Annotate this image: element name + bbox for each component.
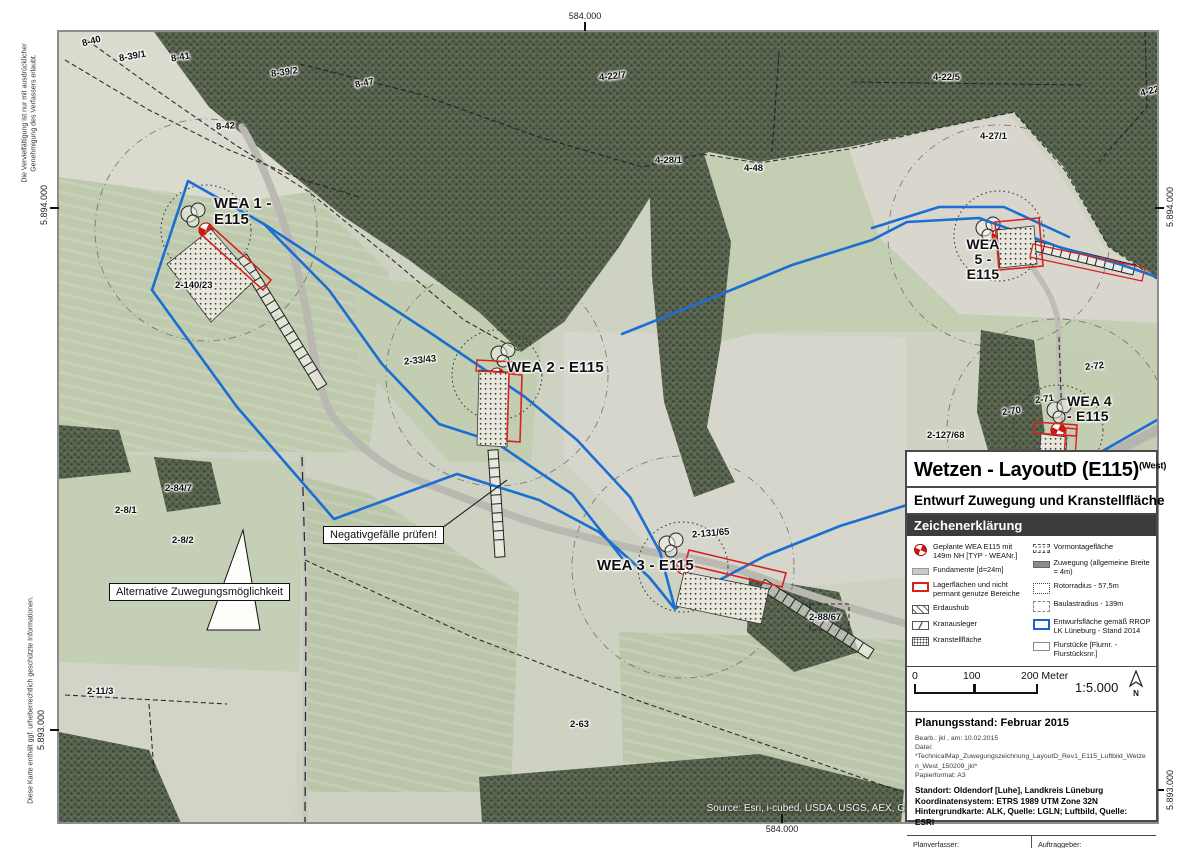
grid-tick-left-bottom	[50, 729, 59, 731]
legend-item: Flurstücke [Flurnr. - Flurstücksnr.]	[1033, 641, 1154, 658]
grid-tick-bottom	[781, 814, 783, 823]
parcel-label: 2-84/7	[165, 483, 192, 494]
legend-item-label: Kranausleger	[933, 620, 977, 629]
legend-item-label: Baulastradius - 139m	[1054, 600, 1124, 609]
fundamente-icon	[912, 568, 929, 575]
legend-item: Zuwegung (allgemeine Breite = 4m)	[1033, 559, 1154, 576]
parcel-label: 4-22/5	[933, 72, 960, 83]
baulast-icon	[1033, 601, 1050, 612]
legend-item-label: Vormontagefläche	[1054, 543, 1114, 552]
sheet-title: Wetzen - LayoutD (E115)(West)	[907, 452, 1156, 488]
imagery-source-credit: Source: Esri, i-cubed, USDA, USGS, AEX, …	[707, 803, 905, 814]
north-label: N	[1126, 689, 1146, 698]
scale-section: 0 100 200 Meter 1:5.000 N	[907, 667, 1156, 712]
standort: Standort: Oldendorf [Luhe], Landkreis Lü…	[915, 786, 1148, 797]
parcel-label: 2-127/68	[927, 430, 965, 441]
sheet-title-text: Wetzen - LayoutD (E115)	[914, 459, 1139, 481]
sheet-title-suffix: (West)	[1139, 460, 1166, 471]
legend-item: Fundamente [d=24m]	[912, 566, 1033, 575]
parcel-label: 2-8/1	[115, 505, 137, 516]
wea-label: WEA 1 -E115	[214, 196, 272, 228]
legend-item: Baulastradius - 139m	[1033, 600, 1154, 612]
sheet-subtitle: Entwurf Zuwegung und Kranstellfläche	[907, 488, 1156, 515]
contact-footer: Planverfasser:KT ENERGIE, Jonas KlattWin…	[907, 836, 1156, 848]
legend-item-label: Zuwegung (allgemeine Breite = 4m)	[1054, 559, 1154, 576]
rotorradius-icon	[1033, 583, 1050, 594]
wea-label: WEA 3 - E115	[597, 558, 694, 574]
parcel-label: 2-11/3	[87, 686, 113, 697]
parcel-label: 4-27/1	[980, 131, 1007, 142]
plan-info-section: Planungsstand: Februar 2015 Bearb.: jkl …	[907, 712, 1156, 835]
parcel-label: 4-48	[744, 163, 763, 174]
legend-item-label: Lagerflächen und nicht permant genutze B…	[933, 581, 1033, 598]
legend: Geplante WEA E115 mit 149m NH [TYP - WEA…	[907, 536, 1156, 667]
papierformat: Papierformat: A3	[915, 771, 1148, 780]
scale-label-100: 100	[963, 670, 981, 682]
scale-label-0: 0	[912, 670, 918, 682]
grid-coord-left-bottom: 5.893.000	[36, 710, 46, 750]
legend-item-label: Fundamente [d=24m]	[933, 566, 1003, 575]
copyright-note-top: Die Vervielfältigung ist nur mit ausdrüc…	[21, 18, 39, 208]
hintergrundkarte: Hintergrundkarte: ALK, Quelle: LGLN; Luf…	[915, 807, 1148, 828]
parcel-label: 2-72	[1084, 360, 1104, 373]
parcel-label: 8-42	[216, 120, 236, 132]
grid-coord-left-top: 5.894.000	[39, 185, 49, 225]
grid-tick-left-top	[50, 207, 59, 209]
grid-coord-top: 584.000	[569, 11, 602, 21]
parcel-label: 2-140/23	[175, 280, 213, 291]
scale-label-200: 200 Meter	[1021, 670, 1068, 682]
legend-item: Rotorradius - 57,5m	[1033, 582, 1154, 594]
annotation-negativgefaelle: Negativgefälle prüfen!	[323, 526, 444, 544]
auftraggeber-block: Auftraggeber:Windpark Tellmer GbRc/o Lün…	[1031, 836, 1156, 848]
contact-line: Auftraggeber:	[1038, 840, 1150, 848]
scale-bar-mid-tick	[973, 684, 976, 692]
legend-header: Zeichenerklärung	[907, 515, 1156, 536]
legend-item: Kranstellfläche	[912, 636, 1033, 646]
parcel-label: 4-28/1	[655, 155, 682, 166]
lager-icon	[912, 582, 929, 592]
datei-name: *TechnicalMap_Zuwegungszeichnung_LayoutD…	[915, 752, 1148, 770]
legend-column-right: VormontageflächeZuwegung (allgemeine Bre…	[1033, 543, 1154, 658]
planungsstand: Planungsstand: Februar 2015	[915, 717, 1148, 729]
grid-tick-top	[584, 22, 586, 31]
kranstellflaeche-icon	[912, 637, 929, 646]
legend-item-label: Kranstellfläche	[933, 636, 981, 645]
north-arrow: N	[1126, 670, 1146, 698]
parcel-label: 2-63	[570, 719, 589, 730]
wea-label: WEA 2 - E115	[507, 360, 604, 376]
grid-tick-right-top	[1155, 207, 1164, 209]
kranausleger-icon	[912, 621, 929, 630]
parcel-label: 2-8/2	[172, 535, 194, 546]
legend-item-label: Erdaushub	[933, 604, 969, 613]
copyright-note-bottom: Diese Karte enthält ggf. urheberrechtlic…	[28, 575, 37, 825]
grid-coord-bottom: 584.000	[766, 824, 799, 834]
wea-symbol-icon	[912, 542, 929, 558]
legend-item: Vormontagefläche	[1033, 543, 1154, 553]
legend-item-label: Geplante WEA E115 mit 149m NH [TYP - WEA…	[933, 543, 1033, 560]
legend-item: Geplante WEA E115 mit 149m NH [TYP - WEA…	[912, 543, 1033, 560]
plan-sheet: 8-408-39/18-418-39/28-478-424-22/74-28/1…	[0, 0, 1200, 848]
legend-item: Kranausleger	[912, 620, 1033, 630]
erdaushub-icon	[912, 605, 929, 614]
legend-item-label: Flurstücke [Flurnr. - Flurstücksnr.]	[1054, 641, 1154, 658]
wea-label: WEA 4- E115	[1067, 394, 1112, 424]
grid-coord-right-top: 5.894.000	[1165, 187, 1175, 227]
contact-line: Planverfasser:	[913, 840, 1025, 848]
entwurf-icon	[1033, 619, 1050, 630]
bearbeiter: Bearb.: jkl , am: 10.02.2015	[915, 734, 1148, 743]
scale-ratio: 1:5.000	[1075, 680, 1118, 695]
north-arrow-icon	[1127, 670, 1145, 689]
datei-label: Datei:	[915, 743, 1148, 752]
parcel-label: 2-88/67	[809, 612, 841, 623]
vormontage-icon	[1033, 544, 1050, 553]
annotation-alternative-zuwegung: Alternative Zuwegungsmöglichkeit	[109, 583, 290, 601]
legend-item: Erdaushub	[912, 604, 1033, 614]
zuwegung-icon	[1033, 561, 1050, 568]
legend-item-label: Rotorradius - 57,5m	[1054, 582, 1119, 591]
grid-coord-right-bottom: 5.893.000	[1165, 770, 1175, 810]
planverfasser-block: Planverfasser:KT ENERGIE, Jonas KlattWin…	[907, 836, 1031, 848]
legend-column-left: Geplante WEA E115 mit 149m NH [TYP - WEA…	[912, 543, 1033, 658]
legend-item: Lagerflächen und nicht permant genutze B…	[912, 581, 1033, 598]
scale-bar	[914, 684, 1038, 694]
wea-label: WEA5 -E115	[959, 237, 1007, 282]
legend-item-label: Entwurfsfläche gemäß RROP LK Lüneburg - …	[1054, 618, 1154, 635]
koordinatensystem: Koordinatensystem: ETRS 1989 UTM Zone 32…	[915, 797, 1148, 808]
legend-item: Entwurfsfläche gemäß RROP LK Lüneburg - …	[1033, 618, 1154, 635]
title-block: Wetzen - LayoutD (E115)(West) Entwurf Zu…	[905, 450, 1158, 822]
flurstuecke-icon	[1033, 642, 1050, 651]
